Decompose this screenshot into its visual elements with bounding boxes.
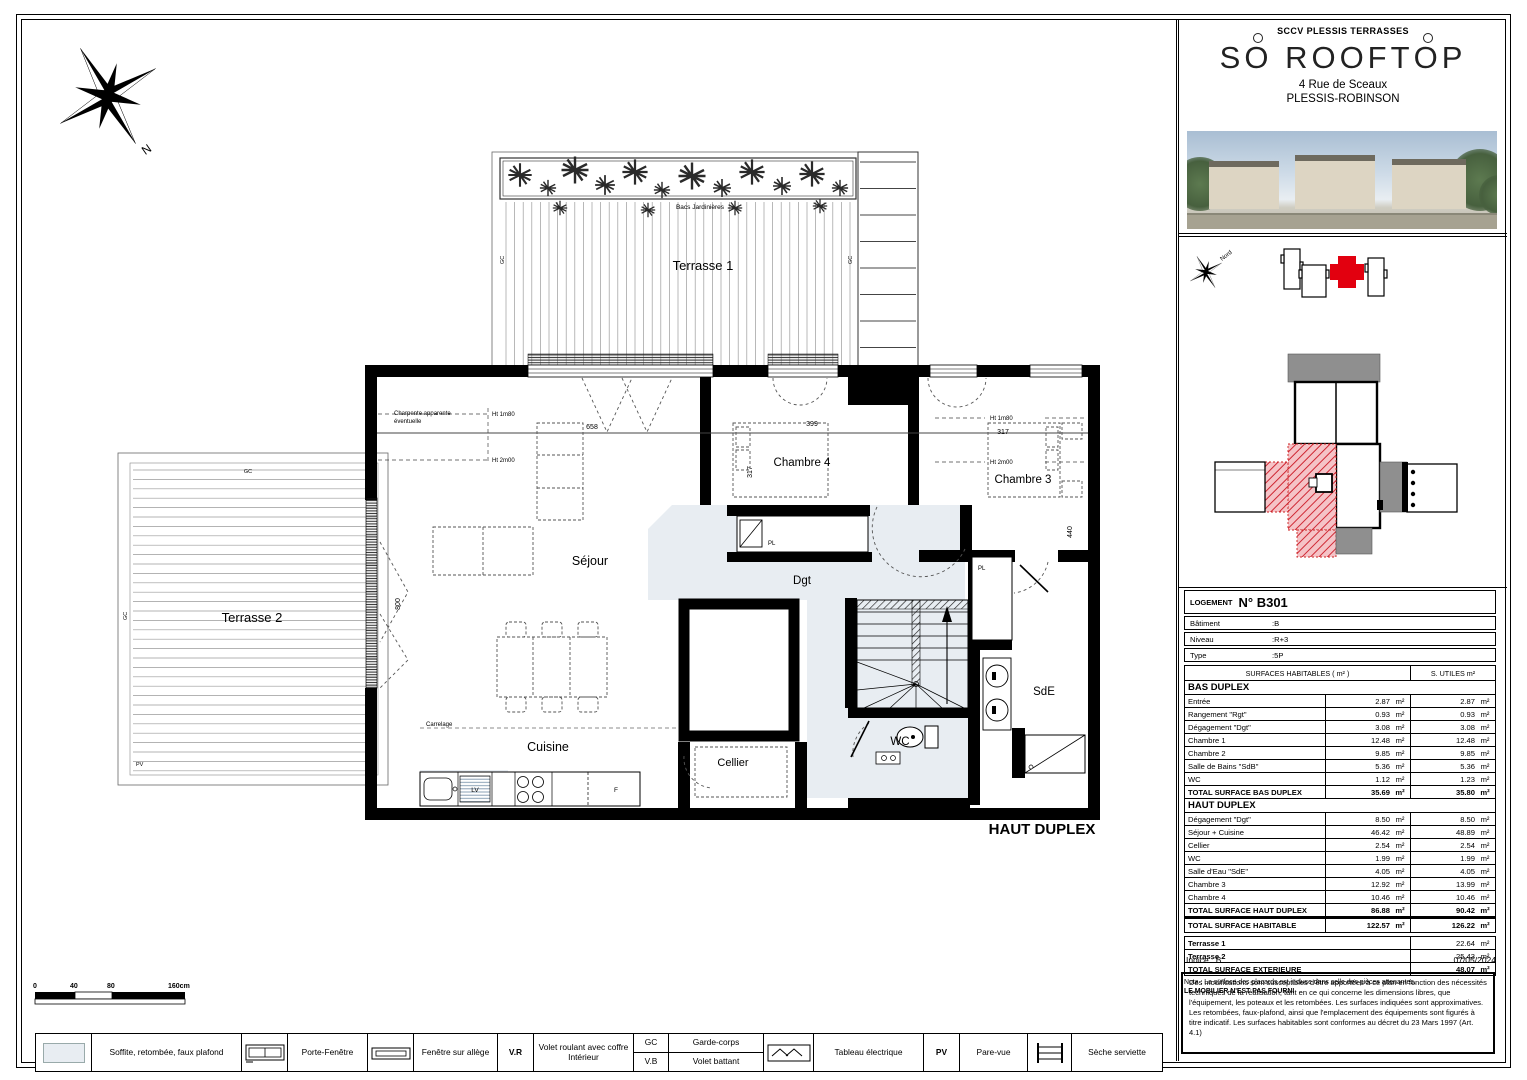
svg-text:40: 40 [70,983,78,990]
svg-text:80: 80 [107,983,115,990]
surface-row: WC 1.99m² 1.99m² [1185,852,1495,865]
ht200-label: Ht 2m00 [990,460,1013,466]
tableau-electrique-icon [764,1034,814,1071]
surface-table-colheads: SURFACES HABITABLES ( m² ) S. UTILES m² [1185,666,1495,681]
svg-text:317: 317 [747,466,754,478]
terrasse-2: Terrasse 2 GC GC PV [118,453,388,785]
surface-row: Cellier 2.54m² 2.54m² [1185,839,1495,852]
legend-gc-vb: GCGarde-corps V.BVolet battant [634,1034,764,1071]
legend-abbr-vb: V.B [634,1053,669,1071]
room-label-dgt: Dgt [793,575,812,587]
legend-label-pv: Pare-vue [960,1034,1028,1071]
scale-bar: 0 40 80 160cm [33,983,190,1004]
svg-text:160cm: 160cm [168,983,190,990]
room-label-cuisine: Cuisine [527,740,569,754]
lv-label: LV [471,787,479,794]
surface-row: Dégagement "Dgt" 3.08m² 3.08m² [1185,721,1495,734]
sde-door-leaf [1020,565,1048,592]
surface-row: Rangement "Rgt" 0.93m² 0.93m² [1185,708,1495,721]
gc-label: GC [244,469,252,475]
unit-header: LOGEMENT N° B301 [1184,590,1496,614]
svg-text:317: 317 [997,429,1009,436]
legend-label-fenetre-allege: Fenêtre sur allège [414,1034,498,1071]
legend-label-gc: Garde-corps [669,1034,763,1052]
gc-label: GC [500,256,506,264]
indice-label: Indice : B [1186,955,1221,965]
legend-label-porte-fenetre: Porte-Fenêtre [288,1034,368,1071]
soffit-color-swatch [43,1043,85,1063]
charpente-note: Charpente apparente [394,411,451,417]
pl-label: PL [978,566,986,572]
unit-info-row: Type:5P [1184,648,1496,662]
compass-north-label: N [139,141,154,157]
room-label-cellier: Cellier [717,757,749,769]
surface-row: Terrasse 1 22.64m² [1185,937,1495,950]
room-label-chambre4: Chambre 4 [774,457,831,469]
legend-label-soffite: Soffite, retombée, faux plafond [92,1034,242,1071]
seche-serviette-icon [1028,1034,1072,1071]
svg-text:800: 800 [395,598,402,610]
ht180-label: Ht 1m80 [990,416,1013,422]
unit-info-row: Bâtiment:B [1184,616,1496,630]
legend-label-seche-serviette: Sèche serviette [1072,1034,1162,1071]
legend-abbr-pv: PV [924,1034,960,1071]
pl-label: PL [768,541,776,547]
surface-row: TOTAL SURFACE HABITABLE 122.57m² 126.22m… [1185,917,1495,932]
room-label-terrasse2: Terrasse 2 [222,610,283,625]
height-lines [377,408,1088,464]
compass-rose [60,48,155,143]
room-label-sejour: Séjour [572,554,608,568]
svg-text:0: 0 [33,983,37,990]
title-block-header: SCCV PLESSIS TERRASSES SO ROOFTOP 4 Rue … [1179,19,1507,237]
room-label-terrasse1: Terrasse 1 [673,258,734,273]
date-label: 07/05/2024 [1453,955,1496,965]
soffit-swatch [36,1034,92,1071]
legend-bar: Soffite, retombée, faux plafond Porte-Fe… [35,1033,1163,1072]
ht200-label: Ht 2m00 [492,458,515,464]
surface-row: Salle d'Eau "SdE" 4.05m² 4.05m² [1185,865,1495,878]
terrasse-1: Bacs Jardinières Terrasse 1 GC GC [492,152,918,370]
ht180-label: Ht 1m80 [492,412,515,418]
porte-fenetre-icon [242,1034,288,1071]
key-plan-section [1179,233,1507,588]
disclaimer-box: Des modifications sont susceptibles d'êt… [1181,972,1495,1054]
svg-text:440: 440 [1067,526,1074,538]
surface-row: TOTAL SURFACE BAS DUPLEX 35.69m² 35.80m² [1185,786,1495,799]
surface-section-title: BAS DUPLEX [1185,681,1495,695]
surface-table-main: SURFACES HABITABLES ( m² ) S. UTILES m² … [1184,665,1496,933]
unit-info-row: Niveau:R+3 [1184,632,1496,646]
surface-section-title: HAUT DUPLEX [1185,799,1495,813]
planter-label: Bacs Jardinières [676,204,725,211]
plan-title: HAUT DUPLEX [989,821,1096,838]
legend-label-vb: Volet battant [669,1053,763,1071]
surface-row: Chambre 1 12.48m² 12.48m² [1185,734,1495,747]
svg-text:658: 658 [586,424,598,431]
surface-row: Dégagement "Dgt" 8.50m² 8.50m² [1185,813,1495,826]
charpente-note2: éventuelle [394,419,422,425]
project-logo: SO ROOFTOP [1179,40,1507,76]
surface-row: Chambre 3 12.92m² 13.99m² [1185,878,1495,891]
fenetre-allege-icon [368,1034,414,1071]
pv-label: PV [136,762,144,768]
room-label-sde: SdE [1033,686,1055,698]
legend-label-tableau: Tableau électrique [814,1034,924,1071]
carrelage-label: Carrelage [426,722,453,728]
surface-table: LOGEMENT N° B301 Bâtiment:BNiveau:R+3Typ… [1184,590,1496,996]
surface-row: TOTAL SURFACE HAUT DUPLEX 86.88m² 90.42m… [1185,904,1495,917]
surface-row: WC 1.12m² 1.23m² [1185,773,1495,786]
surface-row: Chambre 2 9.85m² 9.85m² [1185,747,1495,760]
gc-label: GC [848,256,854,264]
gc-label: GC [123,612,129,620]
surface-row: Séjour + Cuisine 46.42m² 48.89m² [1185,826,1495,839]
room-label-wc: WC [890,736,909,748]
project-address: 4 Rue de Sceaux PLESSIS-ROBINSON [1179,78,1507,107]
company-name: SCCV PLESSIS TERRASSES [1179,26,1507,36]
revision-row: Indice : B 07/05/2024 [1186,955,1496,965]
legend-label-vr: Volet roulant avec coffre Intérieur [534,1034,634,1071]
surface-row: Entrée 2.87m² 2.87m² [1185,695,1495,708]
surface-row: Chambre 4 10.46m² 10.46m² [1185,891,1495,904]
fridge-label: F [614,787,618,794]
legend-abbr-gc: GC [634,1034,669,1052]
building-render-image [1187,131,1497,229]
svg-text:399: 399 [806,421,818,428]
legend-abbr-vr: V.R [498,1034,534,1071]
surface-row: Salle de Bains "SdB" 5.36m² 5.36m² [1185,760,1495,773]
room-label-chambre3: Chambre 3 [995,474,1052,486]
